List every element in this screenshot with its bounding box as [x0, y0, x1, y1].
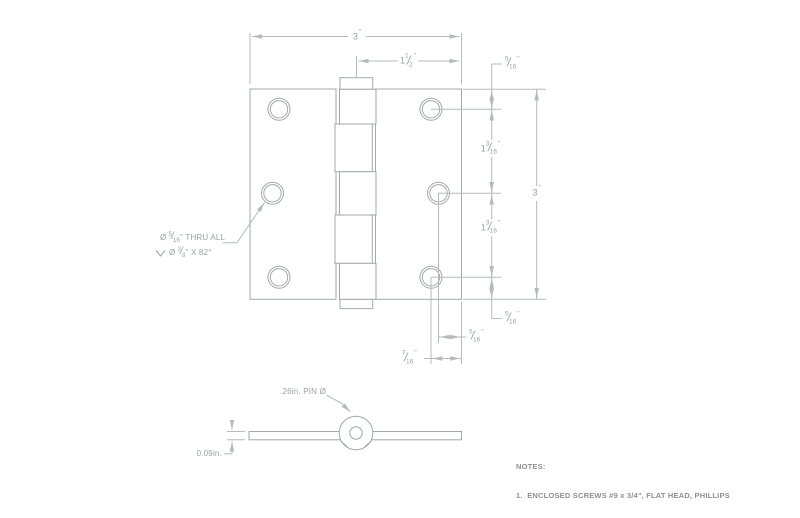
note-item-1: 1. ENCLOSED SCREWS #9 x 3/4", FLAT HEAD,… [516, 491, 730, 501]
hole-callout-line2: Ø 3/8" X 82° [155, 247, 212, 259]
drawing-canvas [0, 0, 800, 518]
left-leaf [250, 89, 336, 299]
dim-right-top-margin: 5/16" [503, 57, 522, 70]
section-left-leaf [249, 432, 340, 440]
knuckle-3 [340, 172, 377, 215]
dim-top-overall: 3" [351, 30, 363, 43]
drawing-sheet: 3" 11/2" 5/16" 13/16" 13/16" 3" 5/16" 5/… [0, 0, 800, 518]
right-leaf [376, 89, 462, 299]
knuckle-5 [340, 263, 377, 299]
bottom-dimensions [424, 193, 466, 364]
section-right-leaf [372, 432, 462, 440]
dim-right-bottom-margin: 5/16" [503, 312, 522, 325]
barrel-bottom-cap [340, 299, 373, 308]
section-view [224, 395, 462, 454]
dim-bottom-outer: 7/16" [400, 352, 419, 365]
right-dimensions [431, 64, 546, 319]
knuckle-1 [340, 89, 377, 124]
notes-title: NOTES: [516, 462, 730, 472]
dim-top-half: 11/2" [398, 55, 418, 68]
notes-block: NOTES: 1. ENCLOSED SCREWS #9 x 3/4", FLA… [516, 442, 730, 518]
dim-right-overall: 3" [531, 187, 543, 200]
pin-diameter-label: .26in. PIN Ø [280, 388, 326, 396]
knuckle-4 [335, 215, 372, 263]
barrel-top-cap [340, 78, 373, 90]
front-view-part [250, 78, 462, 309]
hole-callout-line1: Ø 5/16" THRU ALL [160, 232, 225, 244]
hole-callout-leader [223, 203, 265, 243]
pin-leader [327, 395, 351, 412]
dim-right-gap-upper: 13/16" [479, 142, 503, 155]
knuckle-2 [335, 124, 372, 172]
leaf-thickness-label: 0.09in. [197, 450, 222, 458]
countersink-icon [155, 249, 166, 257]
dim-bottom-inner: 5/16" [467, 330, 486, 343]
dim-right-gap-lower: 13/16" [479, 221, 503, 234]
